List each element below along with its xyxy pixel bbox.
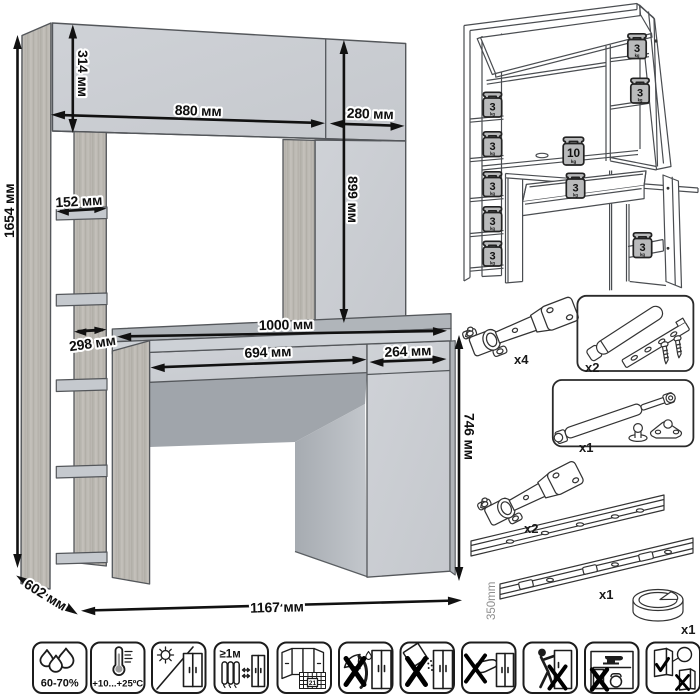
svg-text:264 мм: 264 мм [384,342,431,360]
svg-text:746 мм: 746 мм [462,413,478,460]
svg-text:x4: x4 [514,352,529,367]
svg-text:x2: x2 [524,521,538,536]
svg-text:350mm: 350mm [486,582,498,620]
svg-text:≥1м: ≥1м [220,649,241,661]
svg-text:x1: x1 [681,622,695,637]
svg-text:+10...+25ºC: +10...+25ºC [92,679,143,690]
svg-text:x1: x1 [579,440,593,455]
svg-text:x1: x1 [599,587,613,602]
svg-text:x2: x2 [585,360,599,375]
svg-text:1167 мм: 1167 мм [250,598,304,615]
svg-text:880 мм: 880 мм [175,102,222,119]
svg-text:314 мм: 314 мм [75,50,91,97]
svg-text:694 мм: 694 мм [244,343,291,361]
svg-text:21: 21 [309,680,317,687]
svg-text:60-70%: 60-70% [41,678,79,690]
svg-text:152 мм: 152 мм [55,192,103,210]
svg-text:899 мм: 899 мм [345,176,361,223]
svg-text:280 мм: 280 мм [347,105,394,122]
svg-text:1654 мм: 1654 мм [1,184,17,238]
svg-text:1000 мм: 1000 мм [259,316,314,333]
